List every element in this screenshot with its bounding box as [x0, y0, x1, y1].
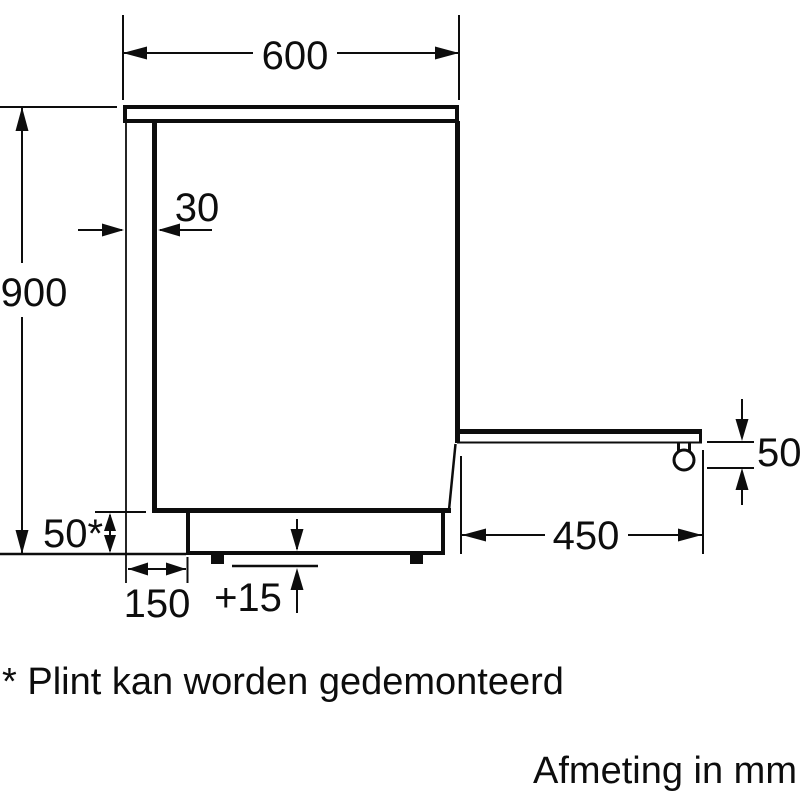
arrowhead-right-icon	[435, 47, 459, 60]
dim-label-height-adjust: +15	[214, 576, 282, 620]
arrowhead-right-icon	[102, 224, 124, 237]
door-handle-icon	[674, 443, 694, 470]
arrowhead-down-icon	[16, 530, 29, 554]
appliance-dimension-diagram: 600 900 30 50* 150 +15	[0, 0, 800, 800]
arrowhead-left-icon	[128, 563, 148, 576]
dimension-open-door-depth: 450	[461, 450, 703, 558]
dim-label-top-width: 600	[262, 34, 329, 78]
door-hinge-slant-line	[449, 444, 456, 510]
arrowhead-up-icon	[104, 513, 116, 531]
dimension-worktop-overhang: 30	[78, 186, 219, 237]
worktop-slab	[125, 107, 457, 121]
arrowhead-left-icon	[123, 47, 147, 60]
dim-label-worktop-overhang: 30	[175, 186, 220, 230]
dimension-door-clearance: 50	[707, 399, 800, 505]
units-note: Afmeting in mm	[533, 750, 797, 792]
handle-ball	[674, 450, 694, 470]
arrowhead-up-icon	[736, 468, 749, 490]
footnote-plinth-note: * Plint kan worden gedemonteerd	[2, 661, 564, 703]
dimension-left-height: 900	[0, 107, 117, 554]
dimension-plinth-recess: 150	[124, 557, 191, 626]
dim-label-open-door-depth: 450	[553, 514, 620, 558]
arrowhead-down-icon	[104, 535, 116, 553]
dimension-plinth-height: 50*	[43, 512, 146, 556]
arrowhead-right-icon	[166, 563, 186, 576]
arrowhead-down-icon	[291, 529, 304, 551]
dimension-drawing-canvas: 600 900 30 50* 150 +15	[0, 0, 800, 800]
dimension-top-width: 600	[123, 15, 459, 100]
dimension-height-adjust: +15	[214, 519, 318, 620]
dim-label-plinth-recess: 150	[124, 582, 191, 626]
foot-left	[211, 553, 224, 564]
foot-right	[410, 553, 423, 564]
arrowhead-up-icon	[291, 568, 304, 590]
dim-label-plinth-height: 50*	[43, 512, 103, 556]
arrowhead-left-icon	[462, 529, 486, 542]
dim-label-left-height: 900	[1, 271, 68, 315]
arrowhead-up-icon	[16, 107, 29, 131]
arrowhead-down-icon	[736, 419, 749, 441]
dim-label-door-clearance: 50	[757, 431, 800, 475]
arrowhead-right-icon	[678, 529, 702, 542]
